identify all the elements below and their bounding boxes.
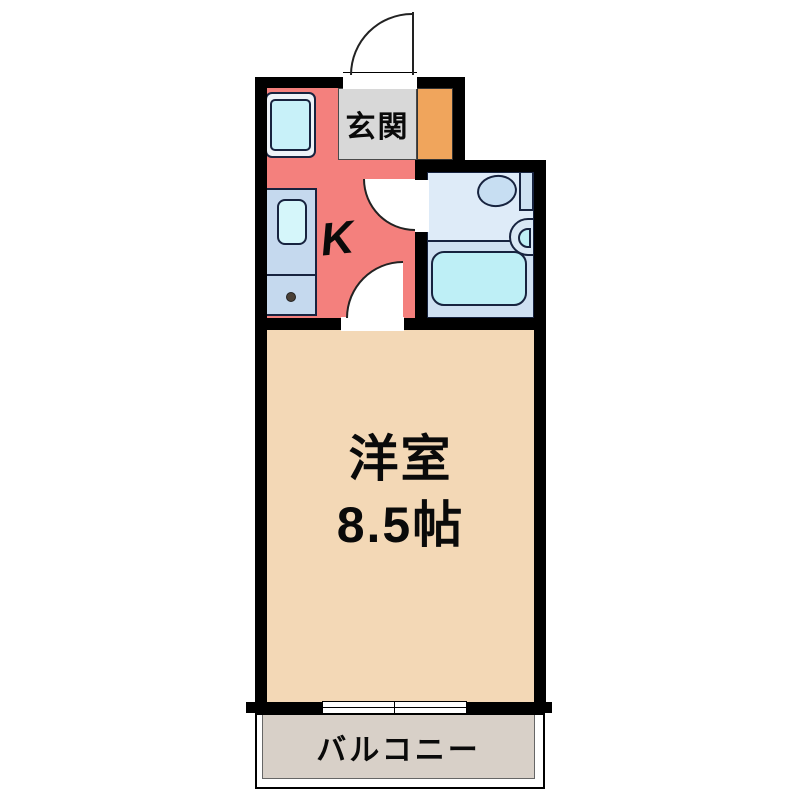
wall-kitchen-right (453, 77, 465, 172)
front-door-leaf-icon (412, 12, 414, 75)
front-door-swing-arc-icon (350, 13, 412, 75)
wall-left (255, 77, 267, 713)
balcony-floor: バルコニー (262, 715, 535, 779)
window-center-tick (394, 702, 395, 713)
main-room-size: 8.5帖 (337, 492, 465, 558)
main-room-name: 洋室 (349, 426, 453, 492)
bathroom-door-opening (415, 180, 429, 232)
entrance-storage-cabinet (417, 88, 453, 160)
main-room-door-opening (341, 317, 404, 331)
toilet-tank-icon (519, 171, 534, 211)
wall-bathroom-top (417, 160, 546, 172)
bathtub-icon (431, 251, 527, 306)
kitchen-label: K (299, 206, 374, 269)
wall-right (534, 160, 546, 713)
washing-machine-icon (270, 99, 311, 151)
wash-basin-bowl-icon (518, 228, 531, 248)
stove-burner-icon (286, 292, 296, 302)
balcony-label: バルコニー (316, 725, 480, 769)
balcony-sliding-window-icon (322, 701, 467, 714)
entrance-label: 玄関 (338, 88, 417, 160)
main-room-label: 洋室 8.5帖 (267, 424, 534, 560)
floor-plan: バルコニー 玄関 K 洋室 8.5帖 (0, 0, 800, 800)
counter-divider-line (265, 274, 317, 276)
balcony-area: バルコニー (255, 713, 545, 789)
